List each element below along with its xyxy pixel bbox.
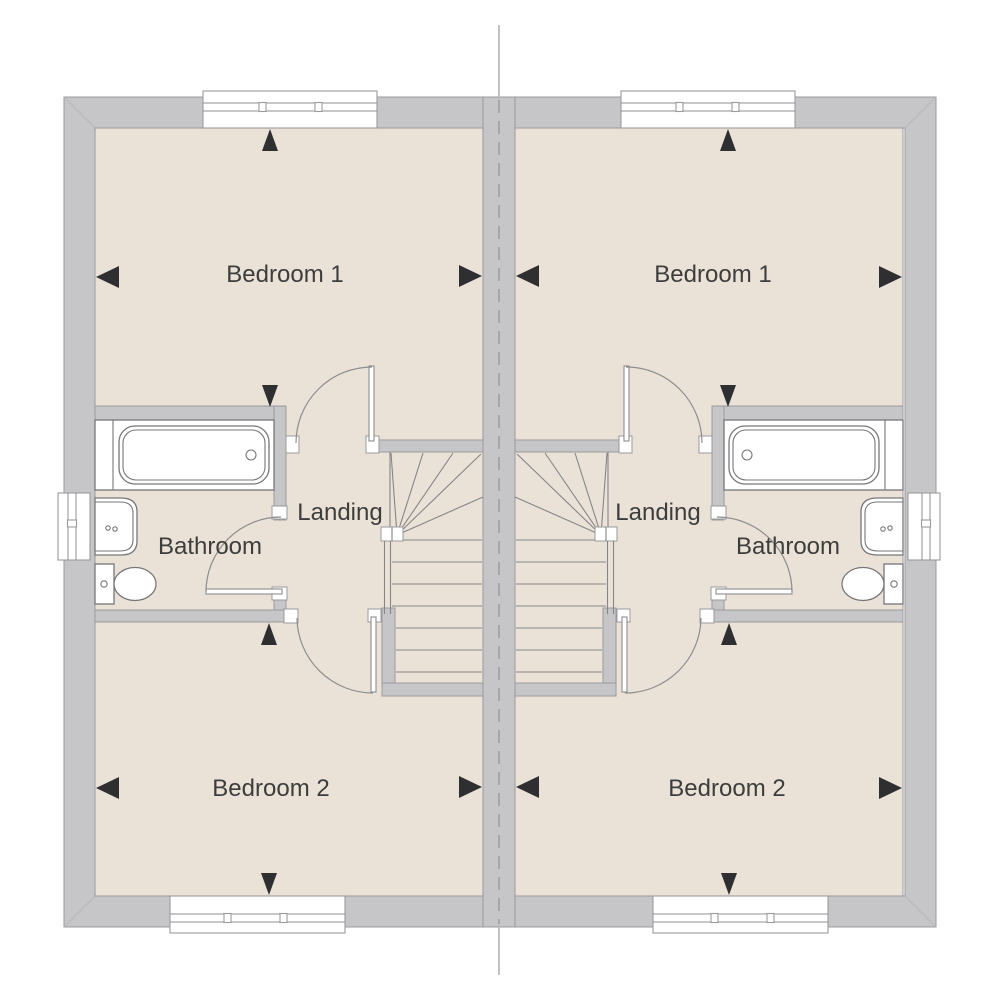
room-label-bathroom-right: Bathroom bbox=[736, 533, 840, 560]
floorplan-page: Bedroom 1 Bathroom Landing Bedroom 2 Bed… bbox=[0, 0, 1000, 1000]
left-dwelling-graphics bbox=[58, 91, 483, 933]
room-label-bathroom-left: Bathroom bbox=[158, 533, 262, 560]
room-label-bedroom2-right: Bedroom 2 bbox=[668, 775, 785, 802]
right-dwelling-graphics bbox=[515, 91, 940, 933]
room-label-landing-left: Landing bbox=[297, 499, 382, 526]
floorplan-canvas: Bedroom 1 Bathroom Landing Bedroom 2 Bed… bbox=[0, 0, 1000, 1000]
room-label-landing-right: Landing bbox=[615, 499, 700, 526]
room-label-bedroom1-right: Bedroom 1 bbox=[654, 261, 771, 288]
room-label-bedroom2-left: Bedroom 2 bbox=[212, 775, 329, 802]
room-label-bedroom1-left: Bedroom 1 bbox=[226, 261, 343, 288]
